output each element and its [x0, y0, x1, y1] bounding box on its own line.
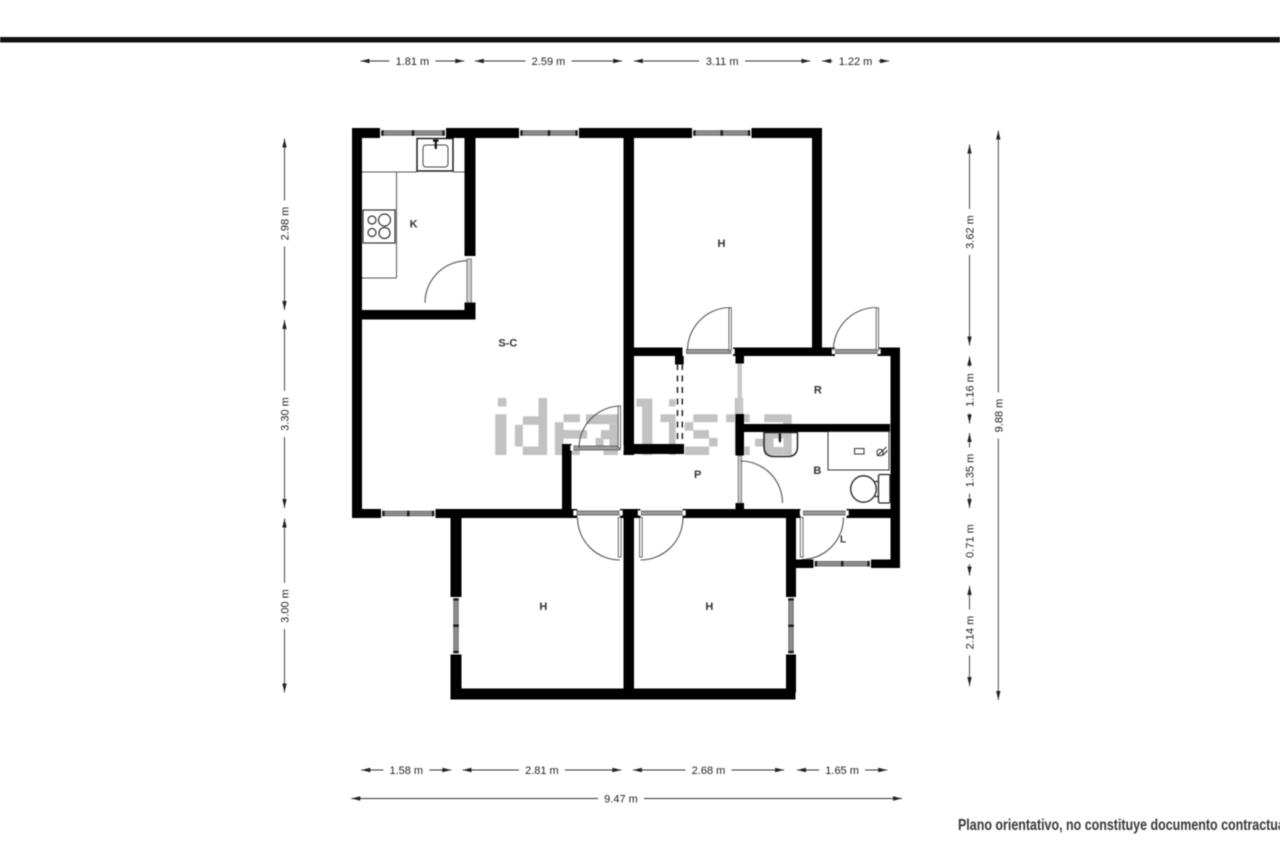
svg-text:R: R — [814, 385, 822, 397]
svg-text:2.59 m: 2.59 m — [532, 56, 566, 68]
svg-text:B: B — [813, 465, 821, 477]
svg-text:2.68 m: 2.68 m — [692, 765, 726, 777]
svg-text:3.62 m: 3.62 m — [965, 215, 977, 249]
svg-text:3.00 m: 3.00 m — [280, 589, 292, 623]
svg-text:1.58 m: 1.58 m — [389, 765, 423, 777]
svg-text:L: L — [840, 535, 846, 546]
svg-text:9.47 m: 9.47 m — [604, 794, 638, 806]
svg-text:1.65 m: 1.65 m — [825, 765, 859, 777]
svg-text:3.11 m: 3.11 m — [706, 56, 739, 68]
svg-text:K: K — [410, 219, 418, 231]
svg-text:H: H — [539, 601, 547, 613]
svg-text:H: H — [718, 238, 726, 250]
svg-text:1.22 m: 1.22 m — [839, 56, 873, 68]
svg-text:1.16 m: 1.16 m — [965, 373, 977, 407]
svg-text:2.14 m: 2.14 m — [965, 616, 977, 650]
svg-text:1.35 m: 1.35 m — [965, 454, 977, 488]
svg-text:3.30 m: 3.30 m — [280, 397, 292, 431]
svg-text:1.81 m: 1.81 m — [396, 56, 430, 68]
svg-text:2.98 m: 2.98 m — [280, 207, 292, 241]
svg-text:H: H — [705, 601, 713, 613]
svg-text:P: P — [694, 469, 701, 481]
svg-text:Plano orientativo, no constitu: Plano orientativo, no constituye documen… — [958, 817, 1280, 835]
svg-text:9.88 m: 9.88 m — [993, 399, 1005, 433]
svg-text:0.71 m: 0.71 m — [965, 524, 977, 558]
svg-text:S-C: S-C — [498, 337, 517, 349]
svg-text:2.81 m: 2.81 m — [525, 765, 559, 777]
